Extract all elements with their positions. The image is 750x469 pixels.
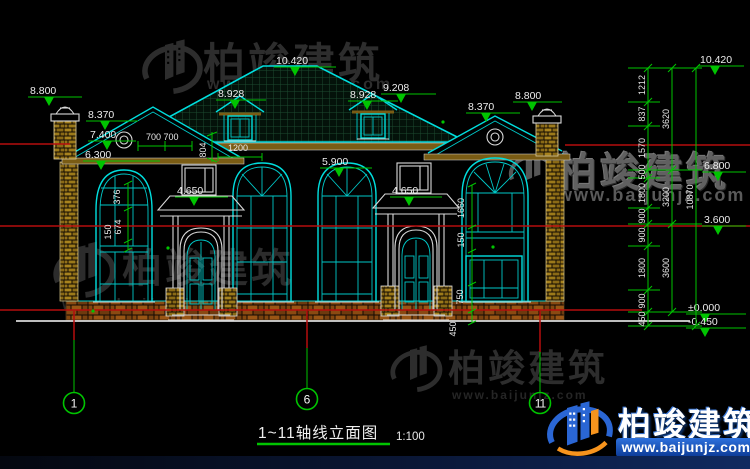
dim-label: 10870 (685, 184, 695, 209)
dim-label: 900 (637, 293, 647, 308)
dim-label: 8.800 (515, 90, 541, 102)
axis-label: 11 (535, 397, 547, 411)
dim-label: 450 (637, 311, 647, 326)
entry-door (187, 240, 215, 310)
dim-label: 3620 (661, 109, 671, 129)
porch-canopy (158, 196, 244, 210)
dim-label: 8.370 (468, 101, 494, 113)
dim-label: 3200 (661, 187, 671, 207)
entry-door (402, 238, 430, 310)
axis-label: 1 (71, 397, 78, 411)
dim-label: 450 (448, 321, 458, 336)
dim-label: 150 (456, 232, 466, 247)
left-chimney (51, 107, 79, 159)
title-block: 1~11轴线立面图 1:100 (257, 424, 425, 444)
base-wall (16, 153, 690, 321)
dim-label: 5.900 (322, 156, 348, 168)
dim-label: 8.800 (30, 85, 56, 97)
quoin-left (60, 162, 78, 301)
drawing-title: 1~11轴线立面图 (258, 424, 378, 442)
dim-label: 1800 (637, 258, 647, 278)
window-center-left (230, 163, 294, 302)
dim-label: 10.420 (700, 54, 732, 66)
bottom-blue-strip (0, 456, 750, 469)
dim-label: 3600 (661, 258, 671, 278)
dim-label: 500 (637, 164, 647, 179)
quoin-right (546, 155, 564, 301)
dim-label: 8.928 (218, 88, 244, 100)
right-dimension-chain: 1212 837 1570 500 1800 900 900 1800 900 … (628, 64, 702, 330)
dim-label: 6.300 (85, 149, 111, 161)
dim-label: 1570 (637, 138, 647, 158)
dim-label: 1200 (228, 143, 248, 153)
dim-label: 900 (637, 227, 647, 242)
dim-label: 3.600 (704, 214, 730, 226)
dim-label: 1800 (637, 183, 647, 203)
drawing-scale: 1:100 (396, 431, 425, 443)
dim-label: 4.650 (392, 185, 418, 197)
axis-label: 6 (304, 393, 311, 407)
dim-label: 6.800 (704, 160, 730, 172)
dim-label: 150 (103, 224, 113, 239)
elevation-drawing: 1 6 11 8.800 8.370 7.400 6.300 10.420 8.… (0, 0, 750, 469)
dim-label: 674 (113, 219, 123, 234)
dim-label: 8.928 (350, 89, 376, 101)
dim-label: 1212 (637, 75, 647, 95)
right-chimney (533, 109, 561, 156)
dim-label: 4.650 (177, 185, 203, 197)
dim-label: 7.400 (90, 129, 116, 141)
dim-label: 804 (198, 142, 208, 157)
dim-label: 10.420 (276, 55, 308, 67)
porch-pedestal (166, 288, 184, 316)
dim-label: 837 (637, 106, 647, 121)
dim-label: 700 700 (146, 132, 179, 142)
window-center-right (315, 163, 379, 302)
dim-label: 1660 (456, 198, 466, 218)
dim-label: 376 (112, 189, 122, 204)
axis-11: 11 (530, 311, 551, 414)
cad-elevation-screenshot: 柏竣建筑 www.baijunjz.com 柏竣建筑 www.baijunjz.… (0, 0, 750, 469)
dim-label: 750 (455, 289, 465, 304)
dim-label: 900 (637, 208, 647, 223)
dim-label: 9.208 (383, 82, 409, 94)
window-right-wing (459, 158, 531, 302)
axis-1: 1 (64, 311, 85, 414)
axis-6: 6 (297, 311, 318, 410)
dim-label: 8.370 (88, 109, 114, 121)
porch-pedestal (381, 286, 399, 316)
